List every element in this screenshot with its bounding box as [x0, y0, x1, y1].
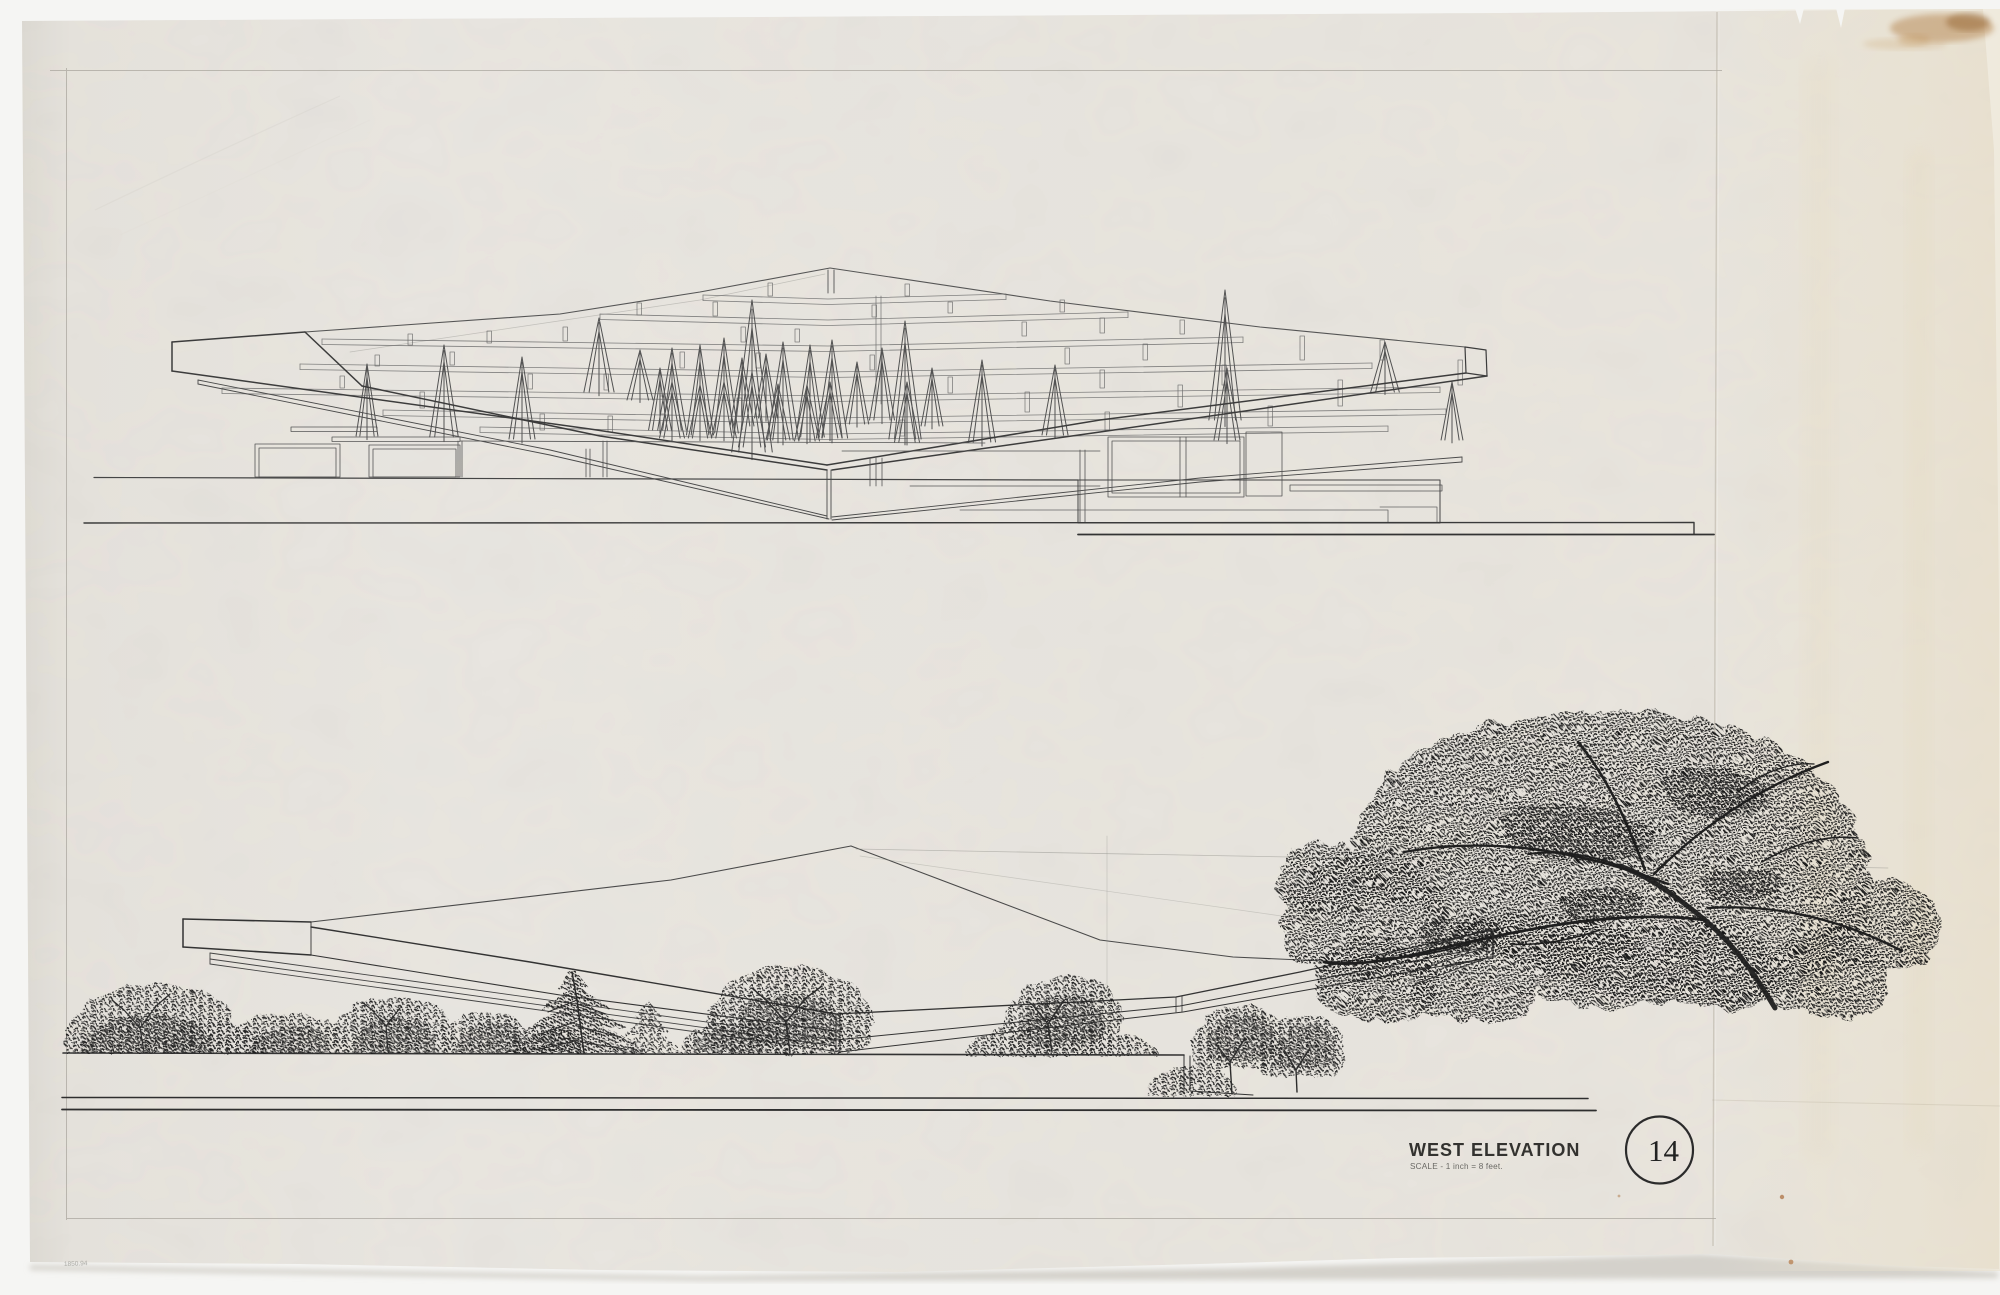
svg-text:SCALE - 1 inch = 8 feet.: SCALE - 1 inch = 8 feet.: [1410, 1162, 1503, 1171]
svg-text:1850.94: 1850.94: [64, 1260, 88, 1268]
svg-text:WEST ELEVATION: WEST ELEVATION: [1409, 1140, 1580, 1160]
svg-text:14: 14: [1648, 1133, 1680, 1168]
